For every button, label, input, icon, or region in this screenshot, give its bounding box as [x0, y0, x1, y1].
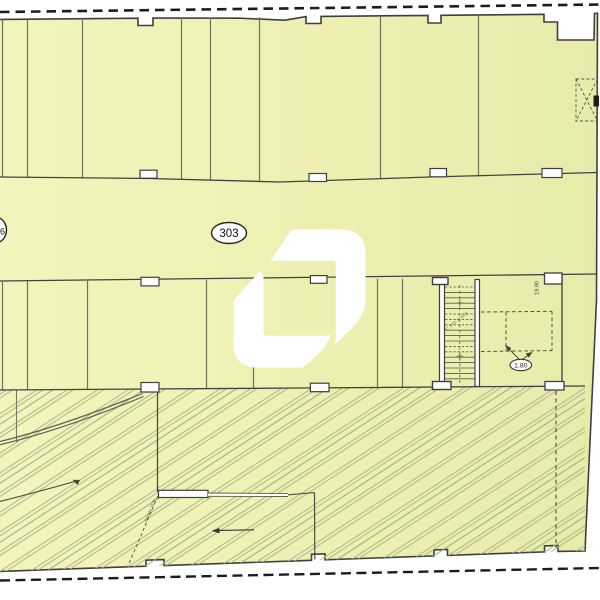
svg-text:19.90: 19.90: [535, 281, 541, 295]
svg-text:1.80: 1.80: [514, 362, 527, 369]
svg-text:06: 06: [0, 227, 5, 237]
svg-text:303: 303: [219, 228, 238, 240]
